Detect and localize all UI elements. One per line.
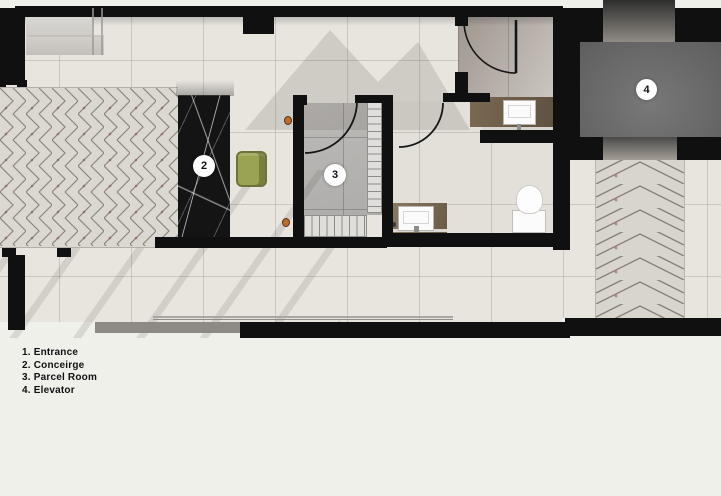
- elevator-corridor-bottom: [603, 137, 677, 160]
- herringbone-pattern-vertical: [596, 160, 684, 318]
- wall-parcel-left: [293, 95, 304, 238]
- wall-parcel-left-jamb: [293, 95, 307, 105]
- wall-corridor-bottom-gray: [95, 322, 240, 333]
- wall-elevator-top-left: [562, 8, 603, 42]
- legend-item-entrance: 1. Entrance: [22, 347, 97, 360]
- wall-lobby-bottom-mid: [155, 237, 387, 248]
- entrance-jamb-a: [0, 80, 6, 87]
- desk-shadow: [176, 80, 234, 96]
- marker-parcel-room: 3: [324, 164, 346, 186]
- wall-top-column: [243, 17, 274, 34]
- legend-item-concierge: 2. Conceirge: [22, 360, 97, 373]
- entrance-walkway: [0, 87, 178, 248]
- sconce-light-lower: [282, 218, 290, 227]
- marker-elevator-label: 4: [643, 84, 649, 96]
- herringbone-pattern-horizontal: [0, 88, 178, 246]
- parcel-shelving-right: [367, 100, 382, 213]
- wall-elevator-bottom-right: [677, 137, 721, 160]
- parcel-shelving-bottom: [303, 215, 367, 237]
- marker-concierge: 2: [193, 155, 215, 177]
- powder-room-floor: [458, 17, 557, 97]
- marker-concierge-label: 2: [201, 160, 207, 172]
- entrance-jamb-c: [2, 248, 16, 257]
- floor-seam-line: [153, 316, 453, 318]
- bathroom-faucet: [414, 226, 419, 232]
- legend-item-elevator: 4. Elevator: [22, 385, 97, 398]
- marker-parcel-room-label: 3: [332, 169, 338, 181]
- floor-plan: 2 3 4 1. Entrance 2. Conceirge 3. Parcel…: [0, 0, 721, 496]
- wall-left-lower-column: [8, 255, 25, 330]
- wall-elevator-bottom-left: [565, 137, 603, 160]
- wall-powder-left-stub-bottom: [455, 72, 468, 100]
- entrance-jamb-b: [17, 80, 27, 87]
- wall-elevator-bottom-right-run: [565, 318, 721, 336]
- floor-seam-line-dark: [153, 319, 453, 320]
- wall-powder-left-stub-top: [455, 17, 468, 26]
- wall-elevator-top-right: [675, 8, 721, 42]
- wall-left-upper-column: [0, 8, 25, 85]
- wall-top: [15, 6, 563, 17]
- entrance-jamb-d: [57, 248, 71, 257]
- legend-item-parcel-room: 3. Parcel Room: [22, 372, 97, 385]
- wall-corridor-bottom: [240, 322, 570, 338]
- wall-parcel-right: [382, 95, 393, 238]
- legend: 1. Entrance 2. Conceirge 3. Parcel Room …: [22, 347, 97, 397]
- sconce-light-upper: [284, 116, 292, 125]
- elevator-corridor-top: [603, 0, 675, 42]
- elevator-walkway: [595, 160, 685, 318]
- top-wall-shadow: [15, 17, 563, 26]
- wall-bathroom-bottom: [382, 233, 557, 247]
- concierge-chair: [236, 151, 267, 187]
- wall-below-powder-vanity: [480, 130, 560, 143]
- toilet-bowl: [516, 185, 543, 214]
- marker-elevator: 4: [636, 79, 657, 100]
- powder-sink: [503, 100, 536, 125]
- bench-lower-shelf: [26, 36, 104, 55]
